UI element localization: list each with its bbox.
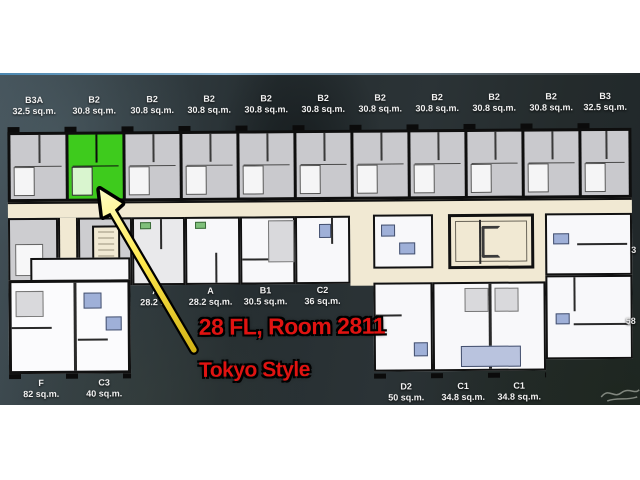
top-unit-row xyxy=(7,128,631,202)
unit-label: C236 sq.m. xyxy=(287,285,357,306)
unit-label: B332.5 sq.m. xyxy=(570,91,640,112)
unit-cell xyxy=(353,132,407,196)
annotation-style: Tokyo Style xyxy=(199,358,310,383)
unit-cell xyxy=(410,132,464,196)
unit-f-c3-block xyxy=(8,279,131,374)
unit-label: F82 sq.m. xyxy=(6,378,76,399)
floorplan-photo: B3A32.5 sq.m. B230.8 sq.m. B230.8 sq.m. … xyxy=(0,73,640,405)
room-above-f xyxy=(30,257,130,282)
stair-symbol xyxy=(482,225,501,257)
highlighted-unit xyxy=(68,134,122,198)
unit-c1-pair xyxy=(432,281,546,371)
unit-cell xyxy=(296,133,350,197)
unit-cell xyxy=(182,134,236,198)
unit-cell xyxy=(581,131,628,195)
unit-c2 xyxy=(295,216,350,284)
unit-cell xyxy=(125,134,179,198)
signature-squiggle xyxy=(597,381,640,405)
stair-core-right xyxy=(448,214,534,270)
unit-cell xyxy=(467,132,521,196)
annotation-room: 28 FL, Room 2811 xyxy=(199,313,385,341)
unit-cell xyxy=(524,131,578,195)
unit-b1 xyxy=(240,216,295,284)
unit-a1 xyxy=(132,217,185,285)
clipped-label-fragment: 3 xyxy=(631,245,636,255)
right-wing-upper xyxy=(545,213,632,276)
unit-label: C340 sq.m. xyxy=(69,377,139,398)
floorplan: B3A32.5 sq.m. B230.8 sq.m. B230.8 sq.m. … xyxy=(0,73,640,405)
top-white-band xyxy=(0,0,640,73)
right-wing-lower xyxy=(545,275,633,360)
unit-cell xyxy=(10,135,65,199)
unit-cell xyxy=(239,133,293,197)
clipped-label-fragment: 58 xyxy=(626,316,636,326)
utility-unit xyxy=(373,214,433,268)
screenshot-root: B3A32.5 sq.m. B230.8 sq.m. B230.8 sq.m. … xyxy=(0,0,640,480)
unit-a2 xyxy=(185,217,240,285)
bottom-notches xyxy=(374,372,546,378)
bottom-white-band xyxy=(0,405,640,480)
unit-label: C134.8 sq.m. xyxy=(484,380,554,401)
